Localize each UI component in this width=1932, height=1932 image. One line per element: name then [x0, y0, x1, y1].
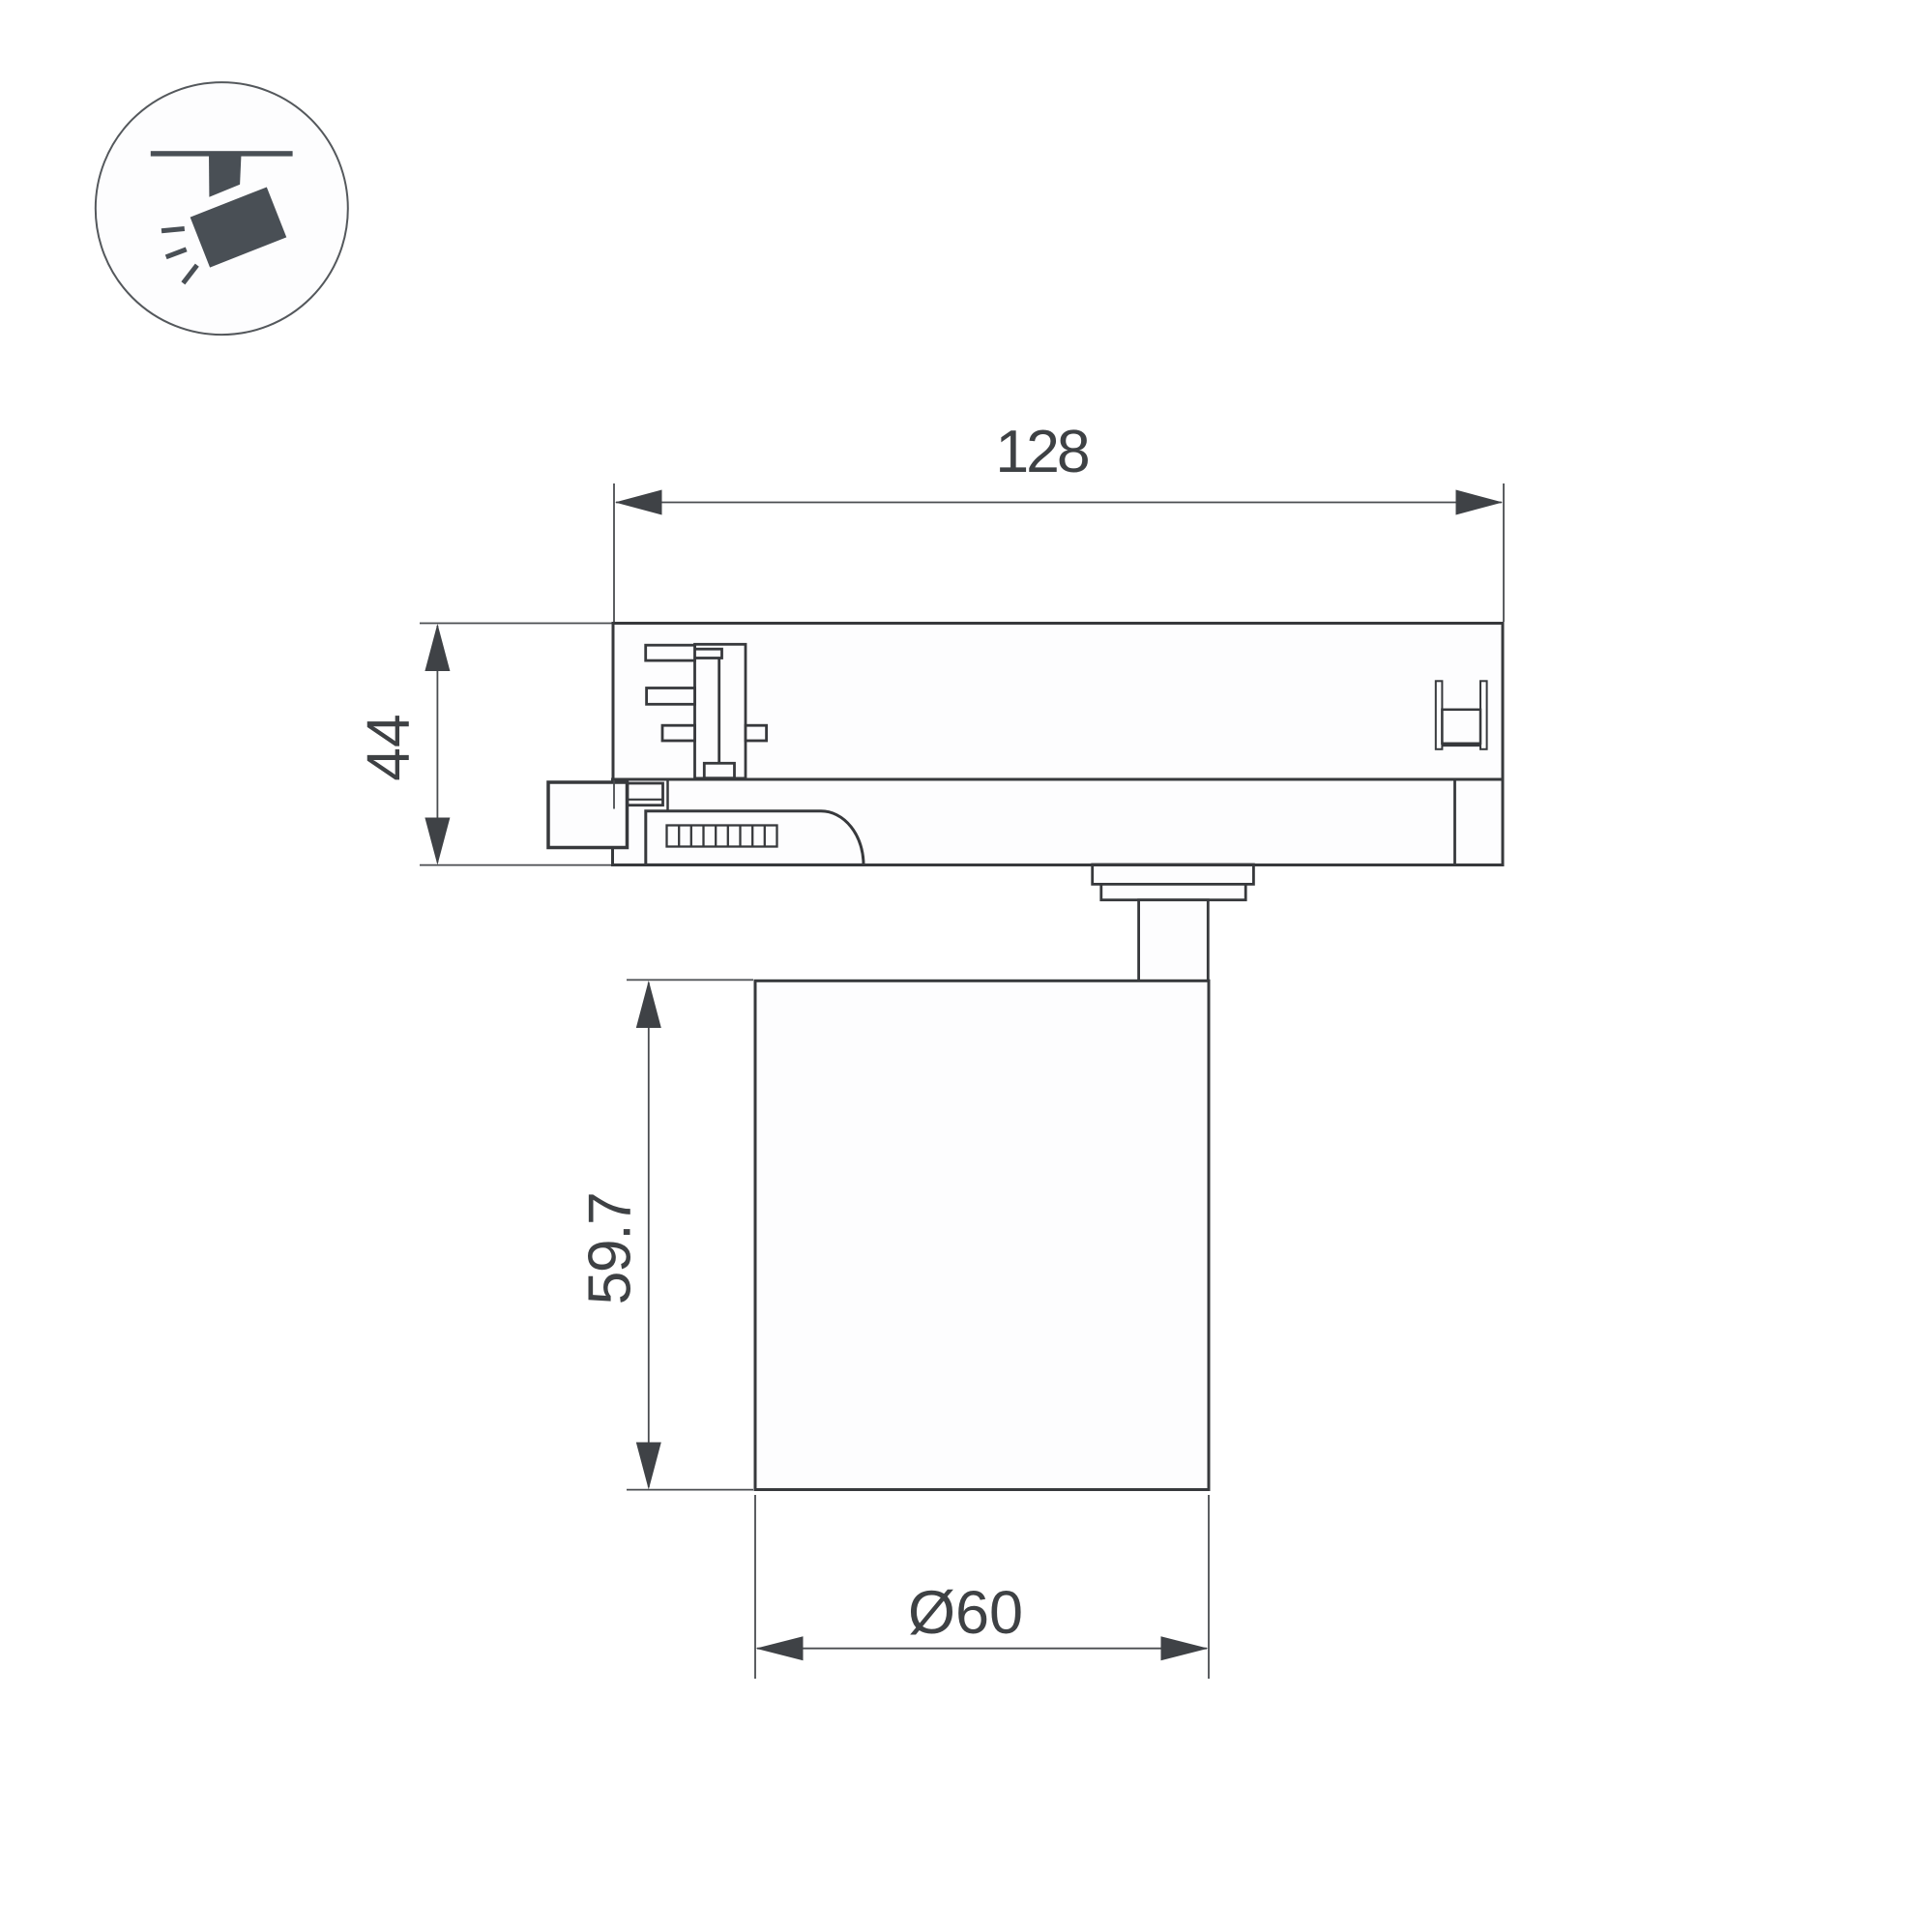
svg-text:59.7: 59.7 [576, 1193, 644, 1305]
svg-text:Ø60: Ø60 [908, 1579, 1023, 1647]
svg-text:128: 128 [995, 418, 1089, 485]
svg-text:44: 44 [355, 714, 423, 781]
